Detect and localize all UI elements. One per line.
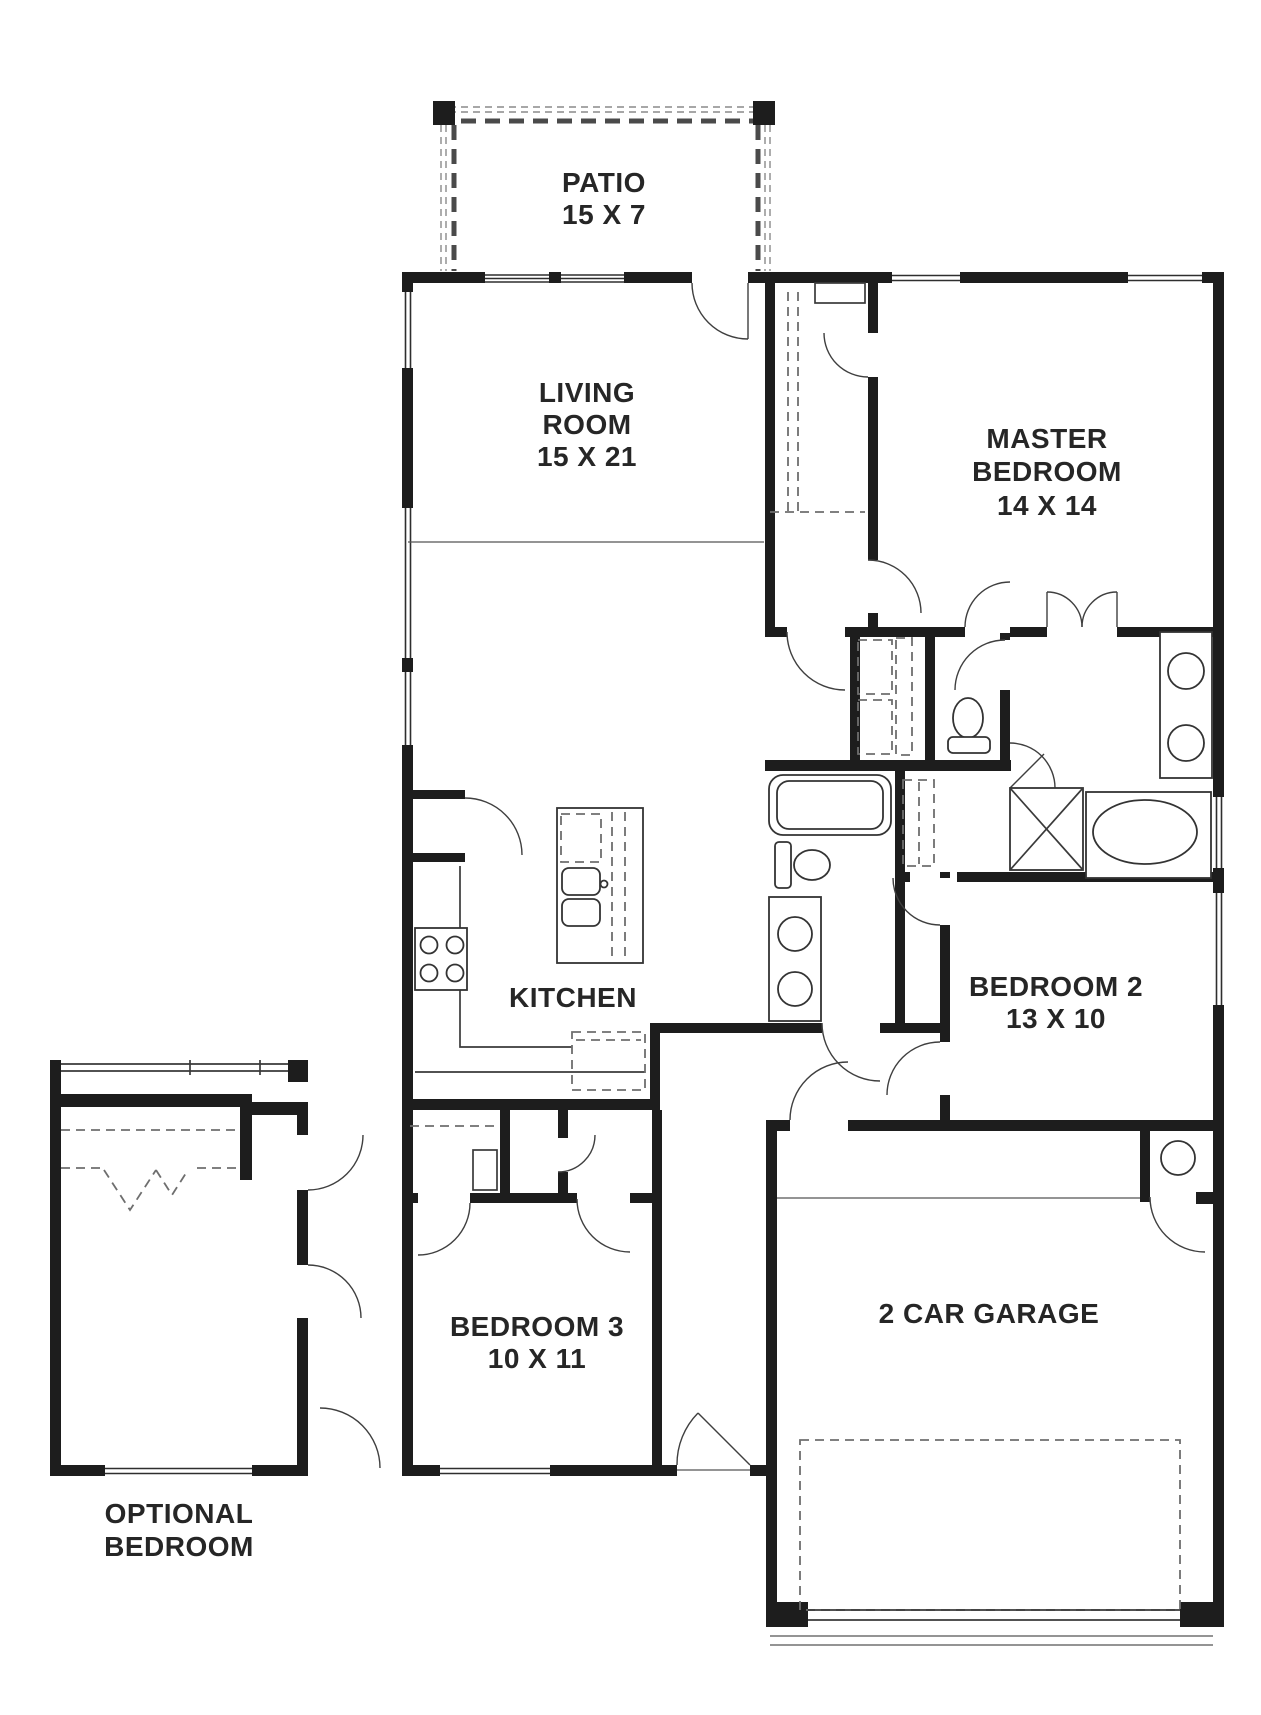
living-room-label: ROOM xyxy=(542,409,631,440)
pantry-wall xyxy=(402,790,465,799)
kitchen-label: KITCHEN xyxy=(509,982,637,1013)
optional-door xyxy=(320,1408,380,1468)
master-bedroom-label: MASTER xyxy=(986,423,1107,454)
floor-plan-drawing: PATIO 15 X 7 LIVING ROOM 15 X 21 MASTER … xyxy=(0,0,1261,1715)
master-bedroom-label: BEDROOM xyxy=(972,456,1122,487)
closet-shelf-box xyxy=(473,1150,497,1190)
garage-label: 2 CAR GARAGE xyxy=(879,1298,1100,1329)
master-bath-fixtures xyxy=(948,632,1212,878)
patio-swing-door xyxy=(692,283,748,339)
bedroom2-door xyxy=(887,1042,940,1095)
vanity-icon xyxy=(769,897,821,1021)
laundry-and-attic xyxy=(770,283,912,755)
floor-plan: PATIO 15 X 7 LIVING ROOM 15 X 21 MASTER … xyxy=(0,0,1261,1715)
patio-label: PATIO xyxy=(562,167,646,198)
toilet-room-door xyxy=(955,640,1005,690)
stove-icon xyxy=(415,928,467,990)
laundry-hall-door xyxy=(787,632,845,690)
kitchen-island xyxy=(557,808,643,963)
counter-edge xyxy=(460,866,572,1047)
hall-bath-fixtures xyxy=(769,775,934,1021)
toilet-icon xyxy=(948,698,990,753)
sliding-door xyxy=(477,272,632,283)
shower-door xyxy=(1010,743,1055,788)
patio-post xyxy=(433,101,455,125)
optional-door xyxy=(308,1135,363,1190)
garden-tub-icon xyxy=(1086,792,1211,878)
master-bedroom-door xyxy=(868,560,921,613)
master-bedroom-dims: 14 X 14 xyxy=(997,490,1097,521)
garage-door xyxy=(800,1440,1180,1610)
pantry-door xyxy=(465,798,522,855)
bedroom3-closets xyxy=(410,1126,497,1190)
bedroom2-dims: 13 X 10 xyxy=(1006,1003,1106,1034)
optional-bedroom-label: BEDROOM xyxy=(104,1531,254,1562)
master-bath-door xyxy=(965,582,1010,627)
bathtub-icon xyxy=(769,775,891,835)
optional-bedroom-label: OPTIONAL xyxy=(105,1498,254,1529)
patio-post xyxy=(753,101,775,125)
hall-closet-door xyxy=(824,333,868,377)
shower-icon xyxy=(1010,788,1083,870)
bedroom2-label: BEDROOM 2 xyxy=(969,971,1143,1002)
patio-dims: 15 X 7 xyxy=(562,199,646,230)
shelf xyxy=(815,283,865,303)
linen-closet xyxy=(903,780,934,866)
water-heater-closet-door xyxy=(1150,1197,1205,1252)
dryer xyxy=(858,700,892,754)
optional-closet-doors xyxy=(104,1170,156,1210)
water-heater-icon xyxy=(1161,1141,1195,1175)
toilet-icon xyxy=(775,842,830,888)
hall-bath-door xyxy=(822,1023,880,1081)
bedroom3-closet-door xyxy=(418,1203,470,1255)
kitchen-fixtures xyxy=(402,790,645,1090)
front-door xyxy=(677,1413,750,1465)
laundry-shelf xyxy=(896,638,912,755)
washer xyxy=(858,640,892,694)
bedroom3-dims: 10 X 11 xyxy=(488,1343,586,1374)
hall-linen-door xyxy=(558,1135,595,1172)
garage-elements xyxy=(770,1141,1213,1645)
living-room-dims: 15 X 21 xyxy=(537,441,637,472)
optional-door xyxy=(308,1265,361,1318)
bedroom3-door xyxy=(577,1199,630,1252)
optional-bedroom-diagram xyxy=(50,1060,380,1476)
garage-entry-door xyxy=(790,1062,848,1120)
living-room-label: LIVING xyxy=(539,377,635,408)
french-doors xyxy=(1047,592,1117,627)
double-vanity-icon xyxy=(1160,632,1212,778)
bedroom3-label: BEDROOM 3 xyxy=(450,1311,624,1342)
pantry-wall xyxy=(402,853,465,862)
